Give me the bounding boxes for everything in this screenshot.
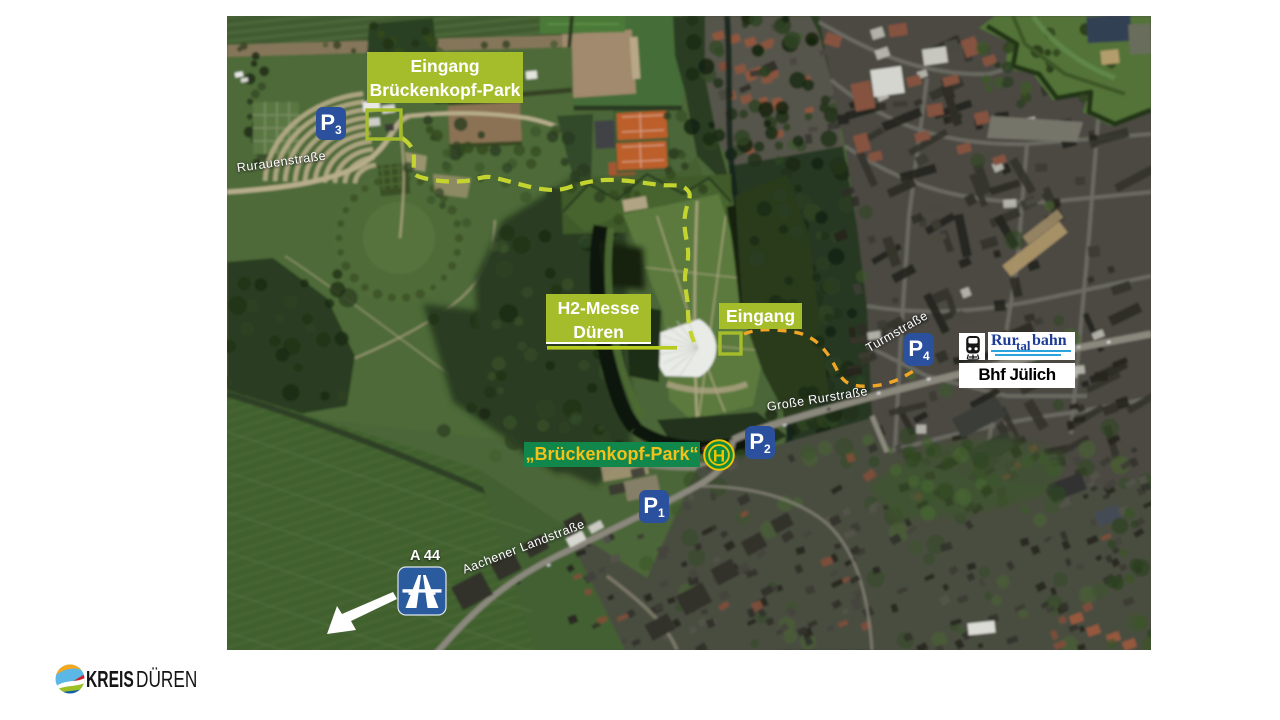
svg-text:KREIS: KREIS xyxy=(86,667,134,693)
svg-text:H: H xyxy=(713,447,725,466)
svg-text:DÜREN: DÜREN xyxy=(136,668,197,693)
